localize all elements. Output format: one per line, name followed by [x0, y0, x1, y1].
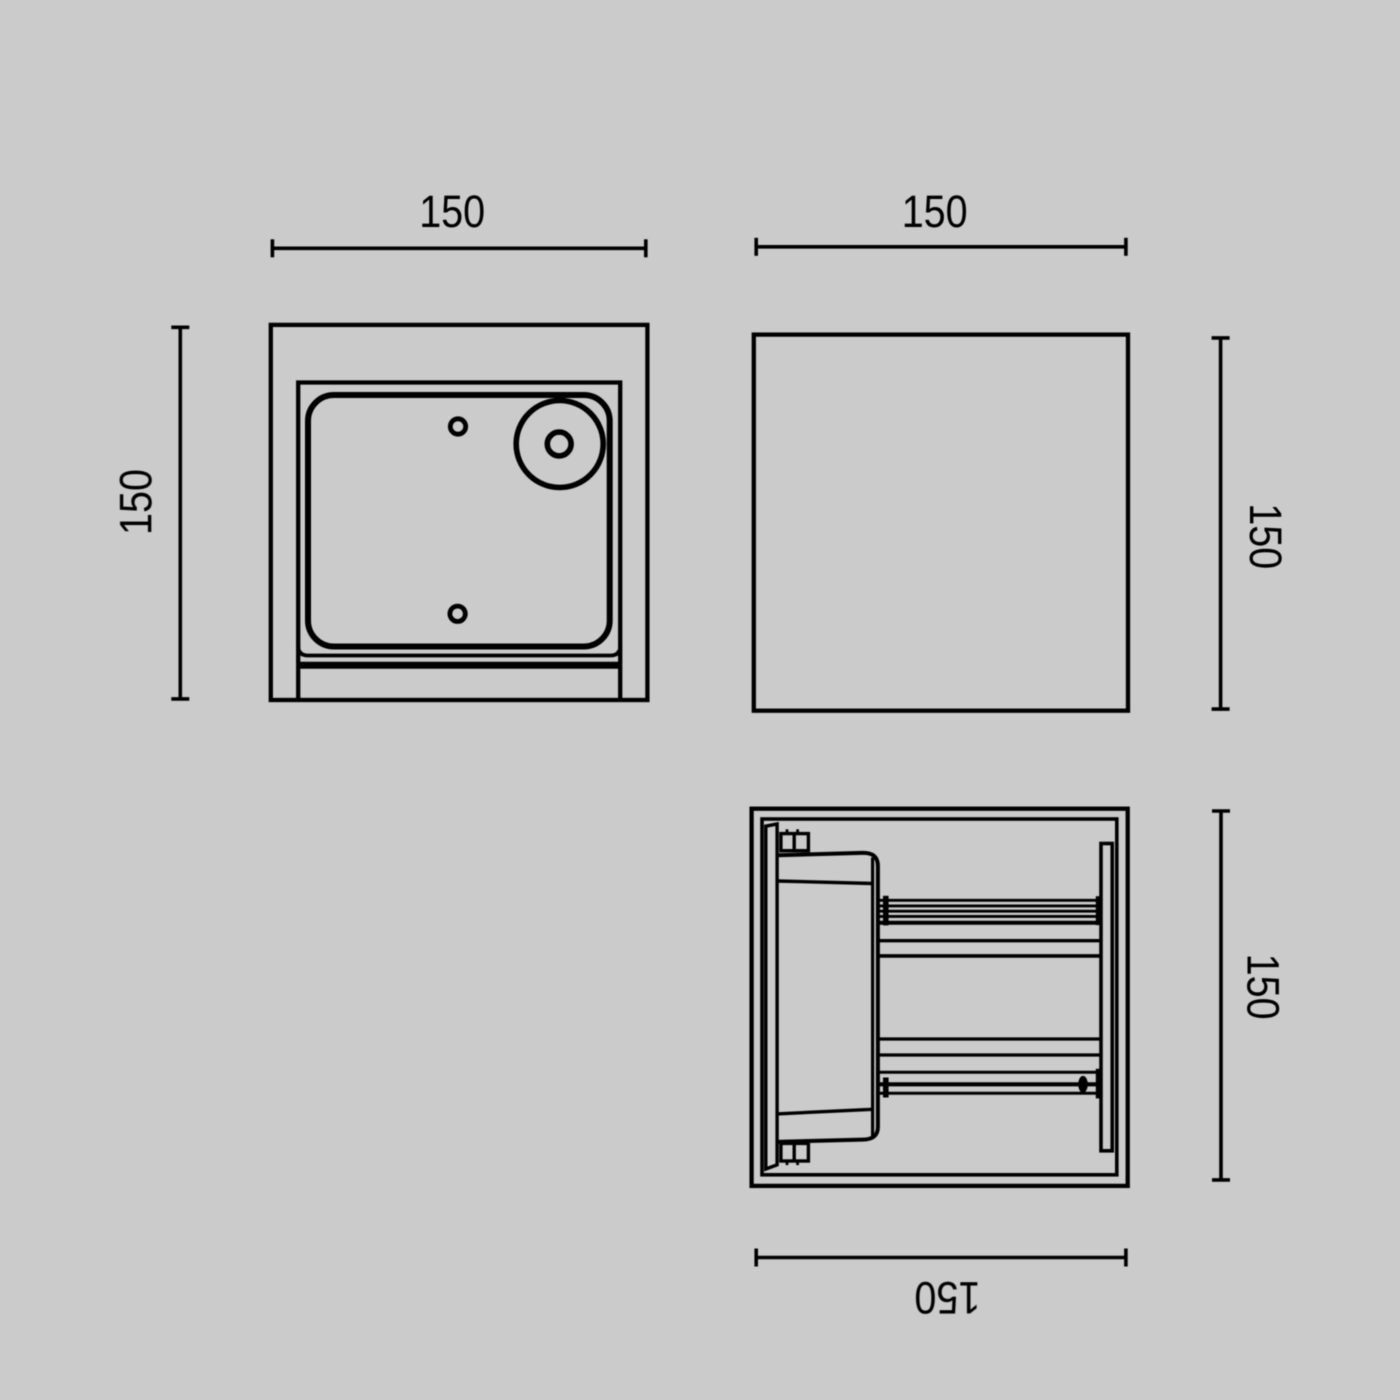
- svg-text:150: 150: [419, 186, 485, 237]
- svg-text:150: 150: [110, 469, 161, 535]
- svg-text:150: 150: [902, 186, 968, 237]
- svg-text:150: 150: [1240, 503, 1291, 569]
- svg-text:150: 150: [914, 1272, 980, 1323]
- svg-text:150: 150: [1238, 954, 1289, 1020]
